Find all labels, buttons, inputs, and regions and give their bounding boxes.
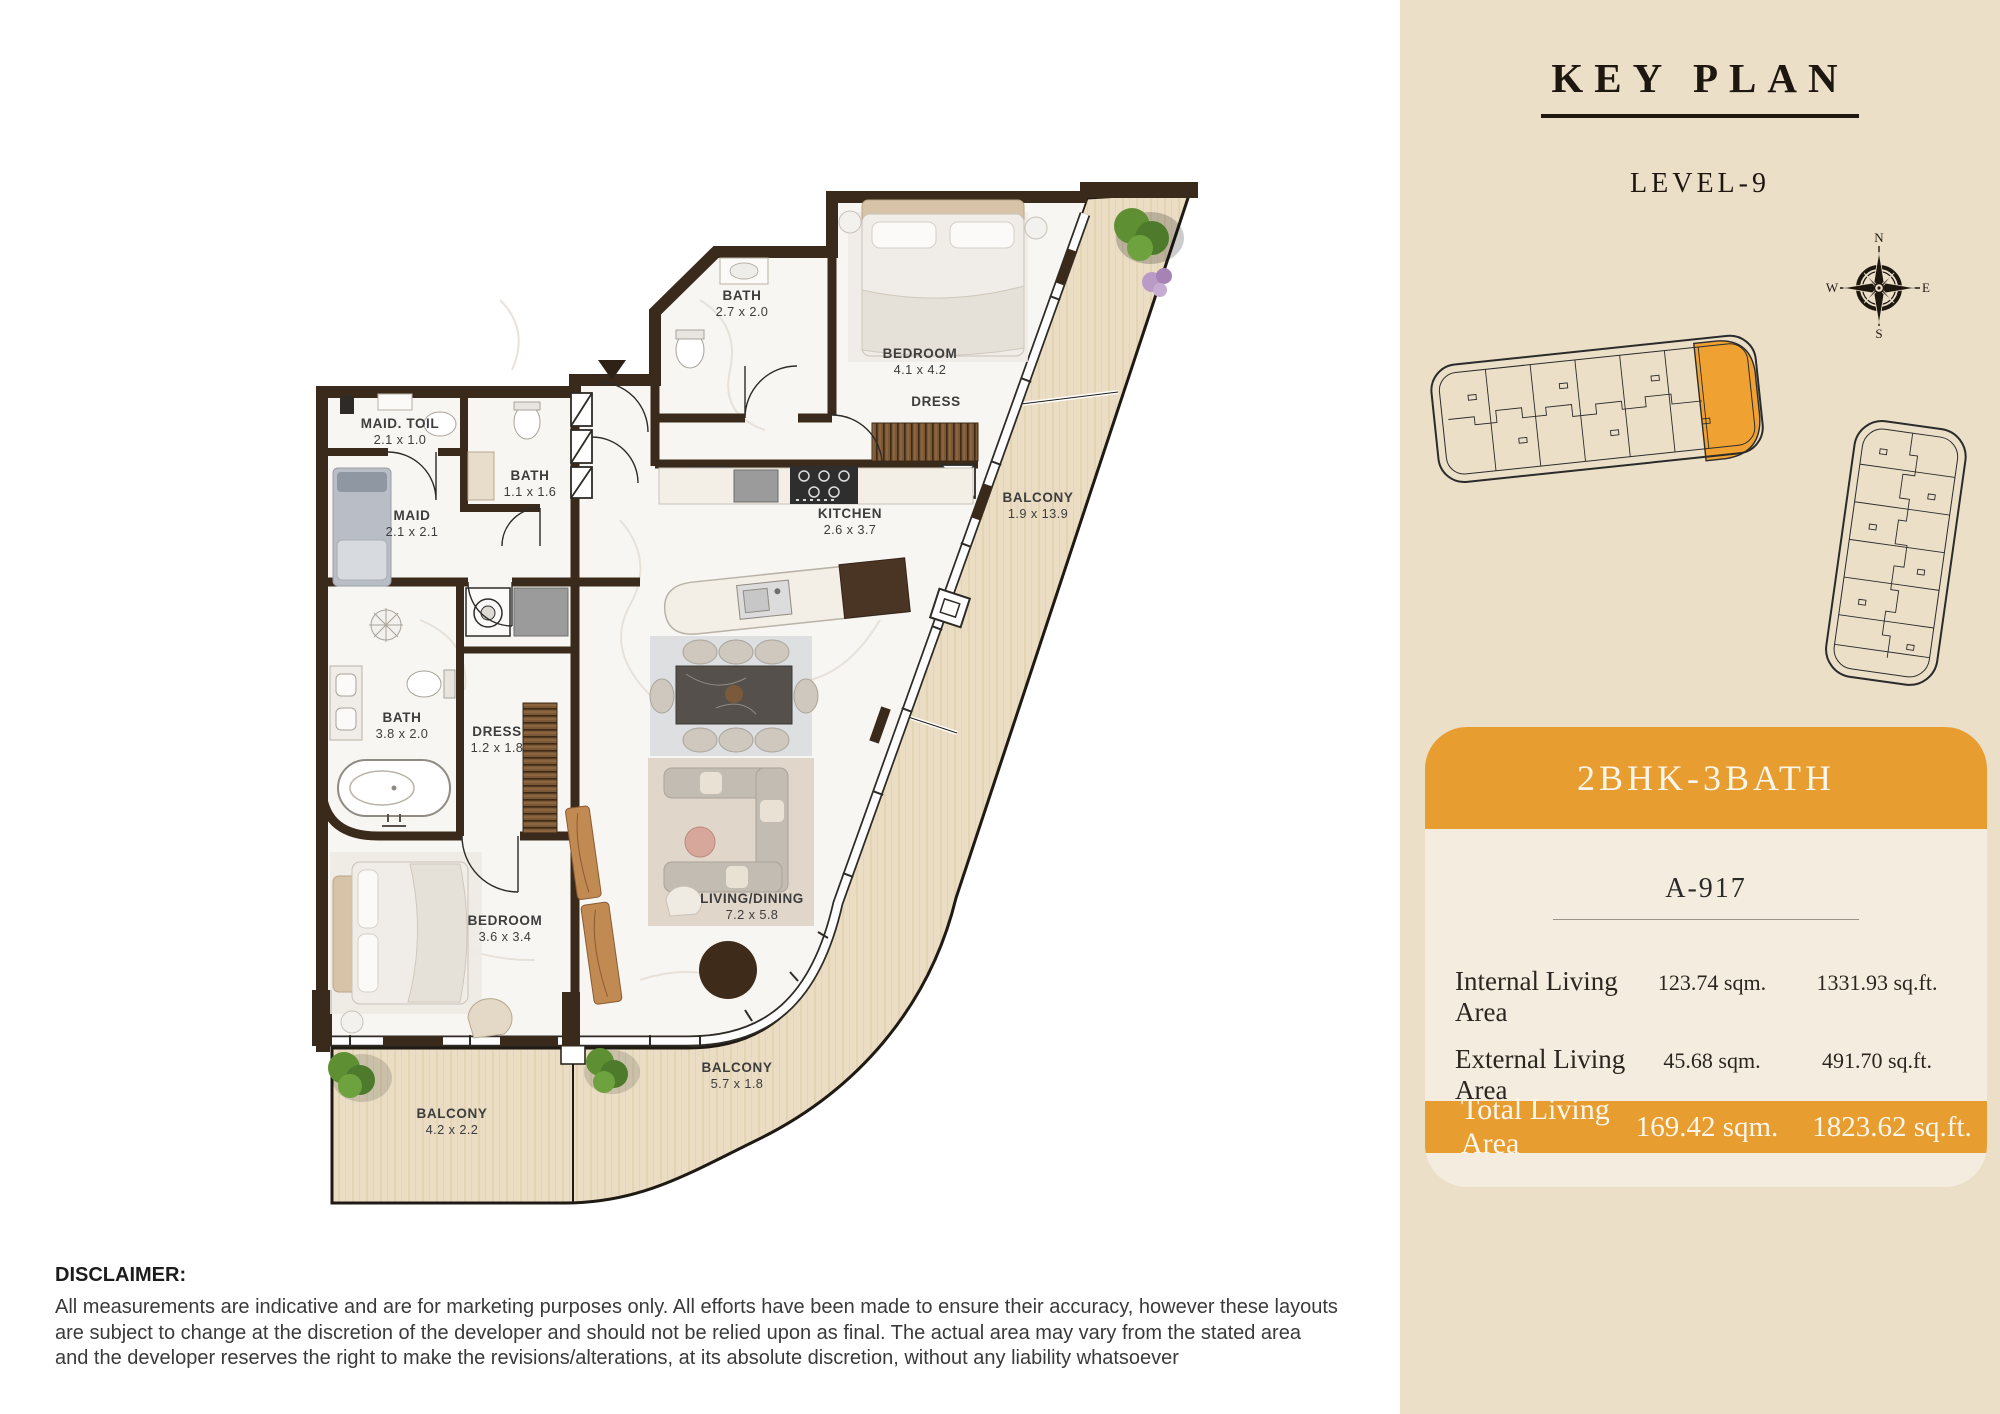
round-table xyxy=(699,941,757,999)
unit-info-card: 2BHK-3BATH A-917 Internal Living Area 12… xyxy=(1425,727,1987,1187)
level-label: LEVEL-9 xyxy=(1400,168,2000,200)
disclaimer: DISCLAIMER: All measurements are indicat… xyxy=(55,1264,1385,1372)
disclaimer-body: All measurements are indicative and are … xyxy=(55,1295,1385,1372)
external-area-sqm: 45.68 sqm. xyxy=(1627,1048,1797,1074)
cabinet xyxy=(514,588,568,636)
room-label: BEDROOM4.1 x 4.2 xyxy=(883,346,958,377)
room-label: KITCHEN2.6 x 3.7 xyxy=(818,506,882,537)
building-a xyxy=(1429,333,1766,488)
shower xyxy=(468,452,494,500)
room-label: BATH1.1 x 1.6 xyxy=(504,468,557,499)
internal-area-sqft: 1331.93 sq.ft. xyxy=(1797,970,1957,996)
room-label: BALCONY4.2 x 2.2 xyxy=(417,1106,488,1137)
nightstand xyxy=(839,211,861,233)
divider xyxy=(1553,919,1859,920)
room-label: DRESS1.2 x 1.8 xyxy=(471,724,524,755)
internal-area-row: Internal Living Area 123.74 sqm. 1331.93… xyxy=(1425,966,1987,1028)
key-plan-panel: KEY PLAN LEVEL-9 N E S xyxy=(1400,0,2000,1414)
room-label: BALCONY1.9 x 13.9 xyxy=(1003,490,1074,521)
unit-type-label: 2BHK-3BATH xyxy=(1577,757,1835,799)
coffee-table xyxy=(685,827,715,857)
unit-number: A-917 xyxy=(1425,873,1987,905)
chair xyxy=(468,999,512,1038)
disclaimer-heading: DISCLAIMER: xyxy=(55,1264,1385,1287)
compass-e: E xyxy=(1922,280,1930,295)
sink xyxy=(378,394,412,410)
floorplan-sheet: BATH2.7 x 2.0BEDROOM4.1 x 4.2DRESSMAID. … xyxy=(0,0,2000,1414)
internal-area-sqm: 123.74 sqm. xyxy=(1627,970,1797,996)
room-label: BALCONY5.7 x 1.8 xyxy=(702,1060,773,1091)
armchair xyxy=(666,886,702,916)
wardrobe xyxy=(523,703,557,833)
internal-area-label: Internal Living Area xyxy=(1455,966,1627,1028)
room-label: DRESS xyxy=(911,394,961,409)
total-area-bar: Total Living Area 169.42 sqm. 1823.62 sq… xyxy=(1425,1101,1987,1153)
nightstand xyxy=(1025,217,1047,239)
total-area-sqm: 169.42 sqm. xyxy=(1617,1111,1797,1144)
room-label: BATH2.7 x 2.0 xyxy=(716,288,769,319)
building-b xyxy=(1822,417,1969,688)
compass-w: W xyxy=(1826,280,1839,295)
external-area-sqft: 491.70 sq.ft. xyxy=(1797,1048,1957,1074)
toilet xyxy=(407,671,441,697)
key-plan-buildings xyxy=(1400,315,2000,735)
room-label: BATH3.8 x 2.0 xyxy=(376,710,429,741)
room-label: MAID2.1 x 2.1 xyxy=(386,508,439,539)
wardrobe xyxy=(872,423,978,461)
area-rows: Internal Living Area 123.74 sqm. 1331.93… xyxy=(1425,966,1987,1106)
dishwasher xyxy=(734,470,778,502)
room-label: BEDROOM3.6 x 3.4 xyxy=(468,913,543,944)
fixture xyxy=(340,396,354,414)
compass-n: N xyxy=(1874,230,1884,245)
highlighted-unit xyxy=(1694,337,1764,460)
total-area-label: Total Living Area xyxy=(1425,1093,1617,1161)
unit-type-header: 2BHK-3BATH xyxy=(1425,727,1987,829)
key-plan-title: KEY PLAN xyxy=(1400,54,2000,118)
total-area-sqft: 1823.62 sq.ft. xyxy=(1797,1111,1987,1144)
